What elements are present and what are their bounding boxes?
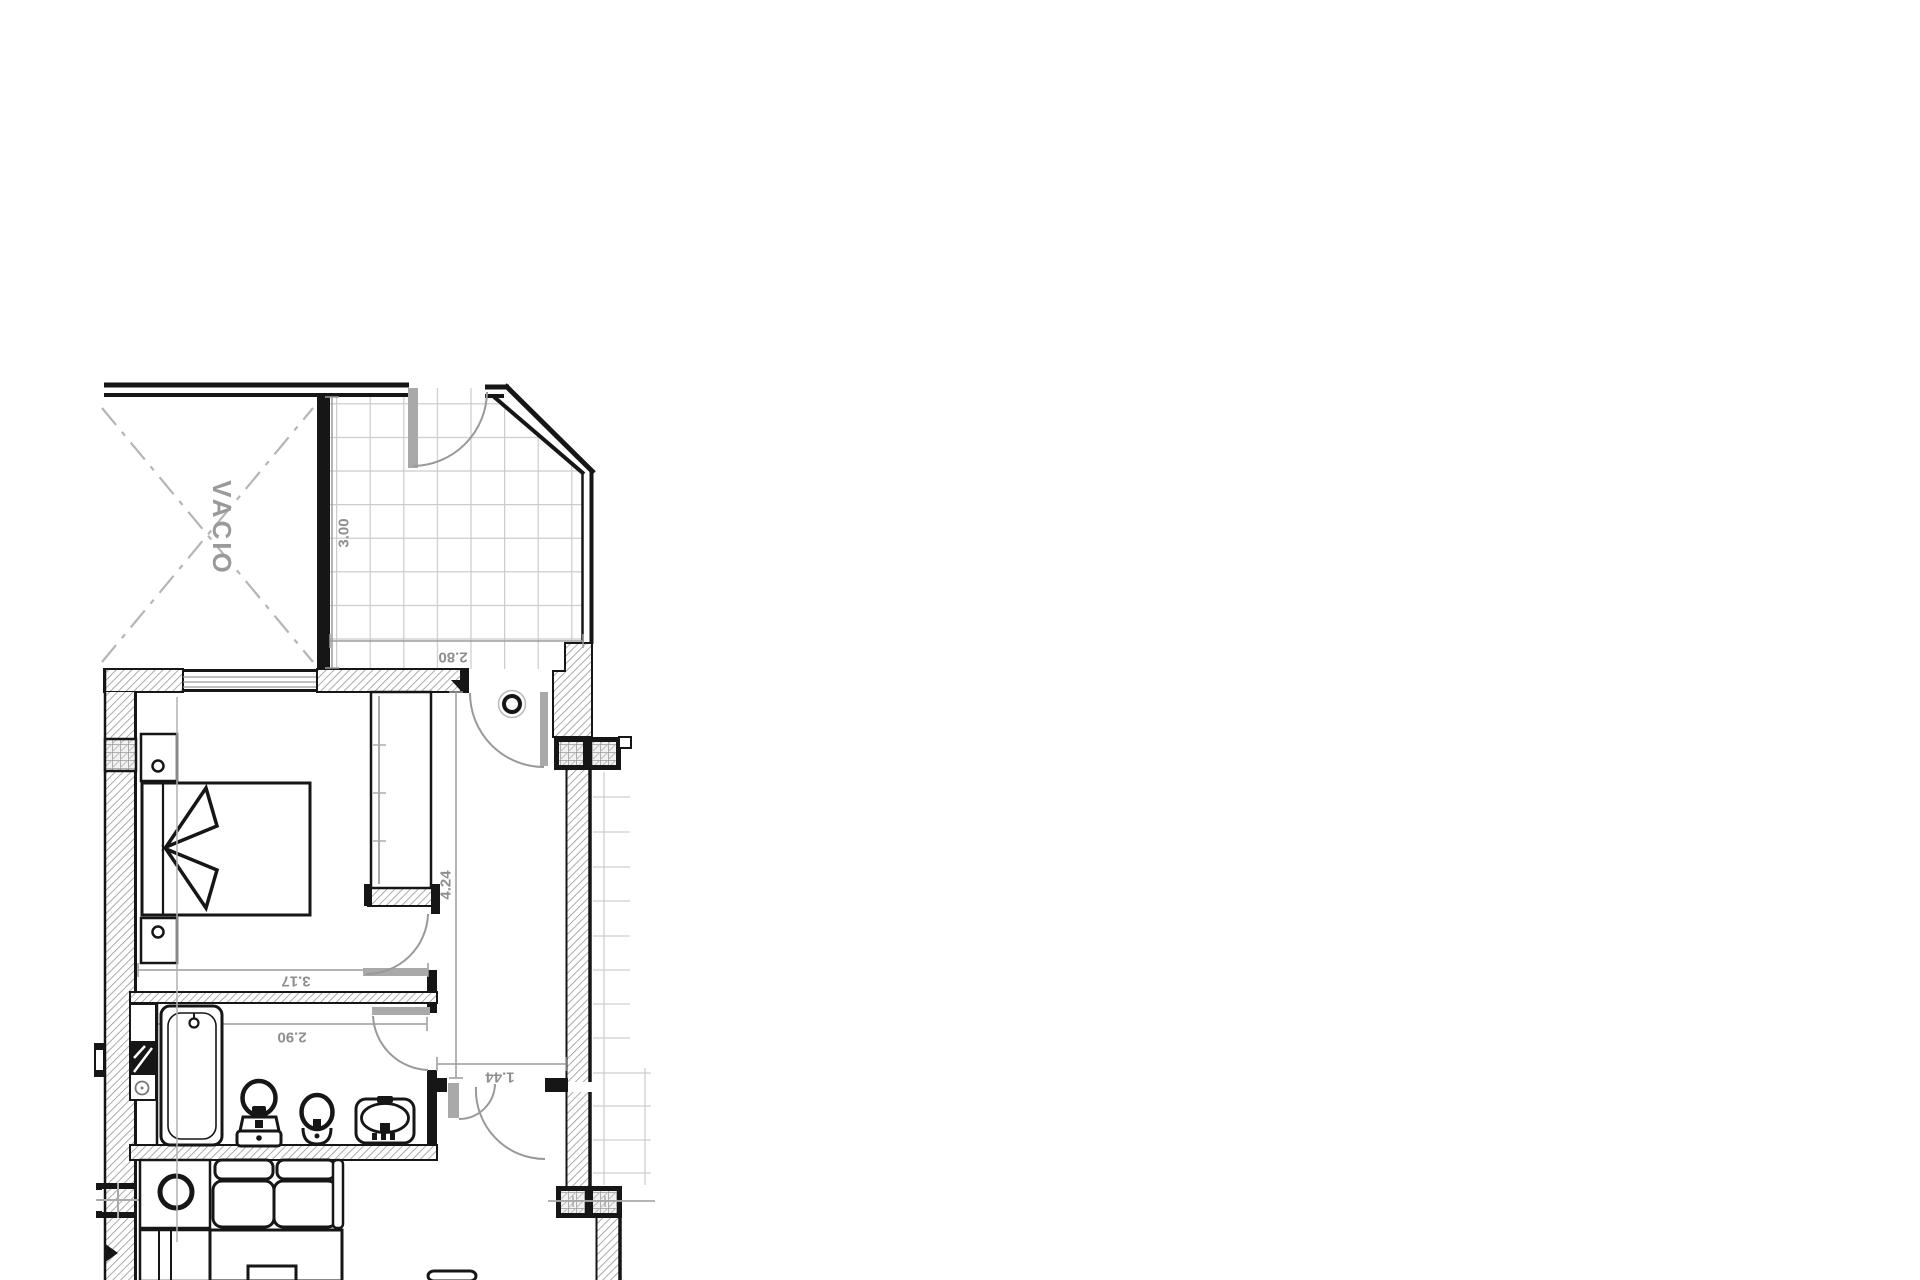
bedroom-window — [183, 671, 317, 691]
west-column-upper — [105, 739, 136, 771]
sofa — [210, 1160, 343, 1280]
toilet — [237, 1081, 281, 1146]
washbasin — [356, 1096, 414, 1143]
dim-bedroom-width: 3.17 — [138, 963, 428, 990]
bedroom-north-wall-left — [104, 669, 183, 692]
bathtub — [161, 1006, 222, 1145]
wardrobe — [371, 692, 431, 888]
side-table — [140, 1160, 210, 1228]
wardrobe-stub-wall — [368, 888, 433, 906]
column-band-upper — [554, 737, 631, 770]
floor-plan-drawing: VACIO — [0, 0, 1920, 1280]
bathroom-door — [372, 1007, 430, 1070]
entry-door — [448, 1083, 545, 1159]
west-wall — [104, 692, 137, 1280]
east-wall-low — [566, 1092, 591, 1186]
dim-label-hall-width: 1.44 — [485, 1069, 515, 1086]
bathroom-south-wall — [130, 1145, 437, 1160]
column-notch — [619, 737, 631, 748]
bedroom-furniture — [141, 692, 431, 963]
dim-label-bathroom-width: 2.90 — [277, 1029, 306, 1046]
nightstand-bottom — [141, 918, 177, 963]
entry-wall-right — [545, 1078, 568, 1092]
dim-label-terrace-depth: 3.00 — [336, 518, 353, 547]
armchair — [140, 1230, 210, 1280]
bathroom-north-wall — [130, 992, 437, 1003]
terrace-south-wall-cap — [460, 670, 468, 692]
dim-hall-length: 4.24 — [438, 692, 464, 1078]
nightstand-top — [141, 734, 177, 781]
west-column-marker — [96, 1183, 140, 1218]
void-room-label: VACIO — [207, 480, 237, 575]
basin-faucet-icon — [380, 1123, 390, 1132]
column-band-lower — [548, 1186, 655, 1218]
bedroom-door — [363, 914, 428, 976]
east-wall-bottom — [596, 1218, 622, 1280]
right-tile-strip — [593, 772, 651, 1185]
dim-label-hall-length: 4.24 — [438, 870, 455, 900]
bathtub-faucet-icon — [190, 1019, 199, 1028]
dim-label-terrace-width: 2.80 — [438, 649, 467, 666]
hall-lamp-icon — [499, 691, 526, 718]
east-wall-mid — [566, 770, 591, 1082]
terrace-door-recess — [410, 388, 485, 398]
terrace-floor — [330, 388, 582, 669]
floor-plan-page: VACIO — [0, 0, 1920, 1280]
dim-label-bedroom-width: 3.17 — [281, 973, 310, 990]
west-wall-fitting — [95, 1044, 104, 1076]
terrace-west-wall — [317, 397, 330, 671]
column-upper-right — [591, 741, 617, 766]
bathroom-fixtures — [130, 1004, 414, 1146]
terrace-south-wall — [317, 669, 468, 692]
coffee-table — [248, 1266, 296, 1280]
tv-unit — [428, 1271, 476, 1280]
column-upper-left — [558, 741, 584, 766]
bed — [142, 783, 310, 915]
bidet — [302, 1095, 333, 1144]
living-room-furniture — [140, 1160, 476, 1280]
entry-wall-left — [433, 1078, 447, 1092]
void-area: VACIO — [102, 408, 313, 662]
